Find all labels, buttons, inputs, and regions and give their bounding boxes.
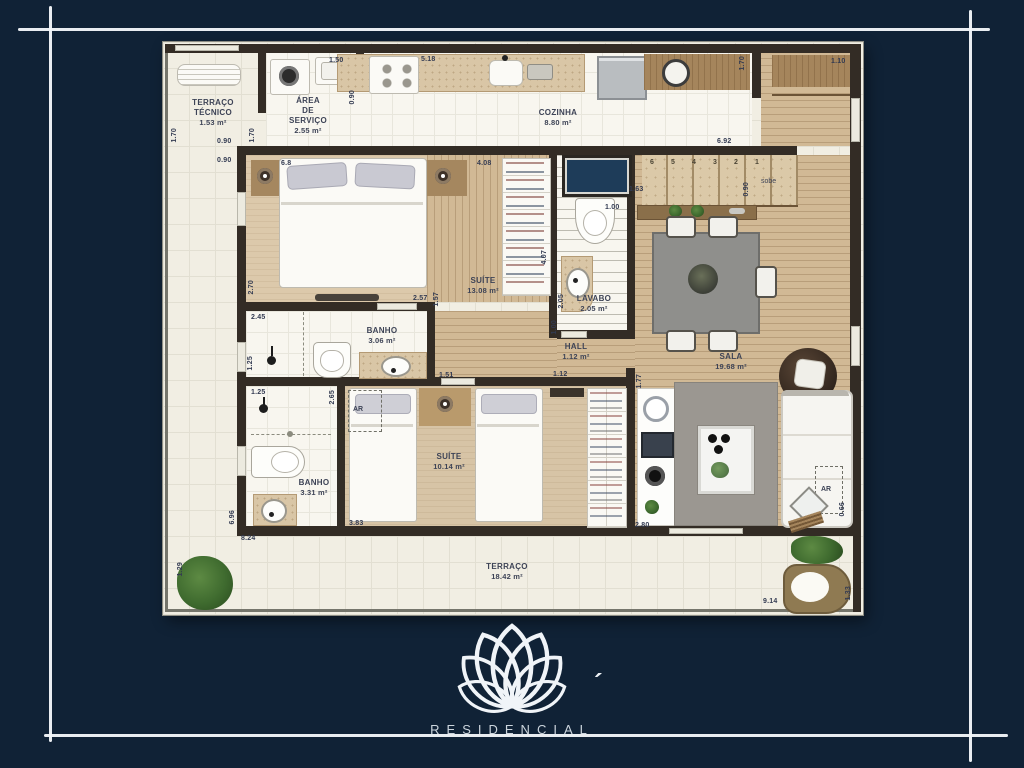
room-label-cozinha: COZINHA8.80 m² [513,108,603,127]
rack-plant [645,500,659,514]
logo-accent-mark: ´ [594,668,603,699]
lounge-cushion [791,572,829,602]
suite2-ac-label: AR [353,406,363,413]
banho2-toilet-bowl [271,451,299,473]
terrace-edge-left [165,51,168,612]
room-label-terraco-tecnico: TERRAÇO TÉCNICO1.53 m² [169,98,257,127]
dimension-label: 8.24 [241,535,255,542]
single-bed-right-pillow [481,394,537,414]
room-label-hall: HALL1.12 m² [545,342,607,361]
dimension-label: 6.92 [717,138,731,145]
dimension-label: 6.96 [229,510,236,524]
dimension-label: 1.12 [553,371,567,378]
dimension-label: 5.18 [421,56,435,63]
lotus-logo [382,592,642,719]
window-tecnico [175,45,239,51]
stove-burners [373,60,413,88]
suite1-closet-clothes [506,162,544,288]
dimension-label: 1.25 [247,356,254,370]
wall-banho2-right [337,386,345,528]
window-suite1 [237,192,246,226]
gourmet-sink [662,59,690,87]
banho1-tap [391,368,396,373]
table-centerpiece [688,264,718,294]
stairs-direction-label: sobe [761,178,776,185]
dimension-label: 2.65 [329,390,336,404]
room-label-suite1: SUÍTE13.08 m² [441,276,525,295]
dimension-label: 1.10 [831,58,845,65]
wall-under-kitchen [237,146,797,155]
shaft [562,155,632,197]
dimension-label: 1.70 [249,128,256,142]
stair-number: 3 [713,159,717,166]
dimension-label: 4.08 [477,160,491,167]
frame-line-left [49,6,52,742]
kitchen-sink [489,60,523,86]
room-label-banho2: BANHO3.31 m² [275,478,353,497]
ac-unit [177,64,241,86]
kitchen-tap [502,55,508,61]
dining-chair [666,330,696,352]
dimension-label: 2.80 [635,522,649,529]
banho2-sink [261,499,287,523]
dimension-label: 1.29 [177,562,184,576]
speaker [645,466,665,486]
wall-bottom [237,526,861,536]
dimension-label: 2.70 [248,280,255,294]
washer-door [279,66,299,86]
dimension-label: 1.51 [439,372,453,379]
table-decor-dot [721,434,730,443]
stair-number: 6 [650,159,654,166]
stair-number: 1 [755,159,759,166]
tv [641,432,674,458]
dimension-label: 0.90 [217,138,231,145]
shower-head-banho1 [267,356,276,365]
lavabo-tap [573,278,578,283]
lamp-right [435,168,451,184]
single-bed-right-fold [477,424,539,427]
table-plant [711,462,729,478]
frame-line-right [969,10,972,762]
dimension-label: 1.77 [636,374,643,388]
bed-pillow-right [354,162,415,189]
dimension-label: 2.05 [558,294,565,308]
wall-banho1-right [427,302,435,386]
dimension-label: 2.45 [251,314,265,321]
stair-number: 4 [692,159,696,166]
dimension-label: 9.14 [763,598,777,605]
terrace-plant-left [177,556,233,610]
dimension-label: 3.83 [349,520,363,527]
dimension-label: 1.33 [845,586,852,600]
wall-suite2-top [237,377,635,386]
room-label-area-servico: ÁREA DE SERVIÇO2.55 m² [263,96,353,135]
room-label-terraco: TERRAÇO18.42 m² [467,562,547,581]
door-banho1 [377,303,417,310]
window-banho2 [237,446,246,476]
room-label-sala: SALA19.68 m² [691,352,771,371]
dimension-label: 1.00 [551,320,558,334]
bed-duvet-fold [281,202,423,205]
terrace-opening [669,528,743,534]
door-suite2 [441,378,475,385]
dimension-label: 0.66 [839,502,846,516]
dimension-label: 4.07 [541,250,548,264]
window-banho1 [237,342,246,372]
dining-chair [708,216,738,238]
hallway-closet-clothes [590,392,622,522]
stair-number: 2 [734,159,738,166]
wall-tv-closet [626,368,635,528]
suite2-dresser [550,388,584,397]
dimension-label: 1.70 [171,128,178,142]
armchair-cushion [793,358,827,390]
bar-ledge [772,94,850,96]
banho2-divider-knob [287,431,293,437]
dimension-label: 6.8 [281,160,291,167]
dimension-label: 0.90 [743,182,750,196]
room-label-lavabo: LAVABO2.05 m² [563,294,625,313]
shower-stem-banho2 [263,397,265,405]
dimension-label: 1.50 [329,57,343,64]
sofa-back [781,390,849,396]
dining-chair [708,330,738,352]
small-appliance [527,64,553,80]
suite2-lamp [437,396,453,412]
dimension-label: 1.00 [605,204,619,211]
shower-stem-banho1 [271,346,273,356]
banho1-toilet-bowl [320,350,344,372]
dimension-label: 0.90 [217,157,231,164]
gourmet-counter [644,54,750,90]
dimension-label: 0.90 [349,90,356,104]
banho2-tap [269,512,274,517]
terrace-plant-right [791,536,843,564]
door-lavabo [561,331,587,338]
dimension-label: 2.57 [413,295,427,302]
wall-clock [643,396,669,422]
sala-ac-label: AR [821,486,831,493]
stair-number: 5 [671,159,675,166]
fridge [597,56,647,100]
frame-line-top [18,28,990,31]
table-decor-dot [708,434,717,443]
banho1-sink [381,356,411,377]
dining-chair [755,266,777,298]
dimension-label: 1.63 [629,186,643,193]
shower-divider-banho1 [303,312,304,376]
dimension-label: 1.57 [433,292,440,306]
room-label-suite2: SUÍTE10.14 m² [409,452,489,471]
floor-plan: 6 5 4 3 2 1 sobe AR [163,42,863,615]
wall-kitchen-bar [752,44,761,98]
brand-text: RESIDENCIAL [430,722,594,737]
page: { "page": {"background": "#102236", "fra… [0,0,1024,768]
window-right-1 [851,98,860,142]
bed-pillow-left [286,162,348,190]
window-right-2 [851,326,860,366]
corridor-wood [431,311,557,377]
wall-right-lower [853,536,861,612]
sideboard-decor [729,208,745,214]
dimension-label: 1.70 [739,56,746,70]
lamp-left [257,168,273,184]
bed-bench [315,294,379,301]
dimension-label: 1.25 [251,389,265,396]
dining-chair [666,216,696,238]
shower-head-banho2 [259,404,268,413]
table-decor-dot [714,445,723,454]
lavabo-toilet-seat [583,210,607,236]
room-label-banho1: BANHO3.06 m² [343,326,421,345]
